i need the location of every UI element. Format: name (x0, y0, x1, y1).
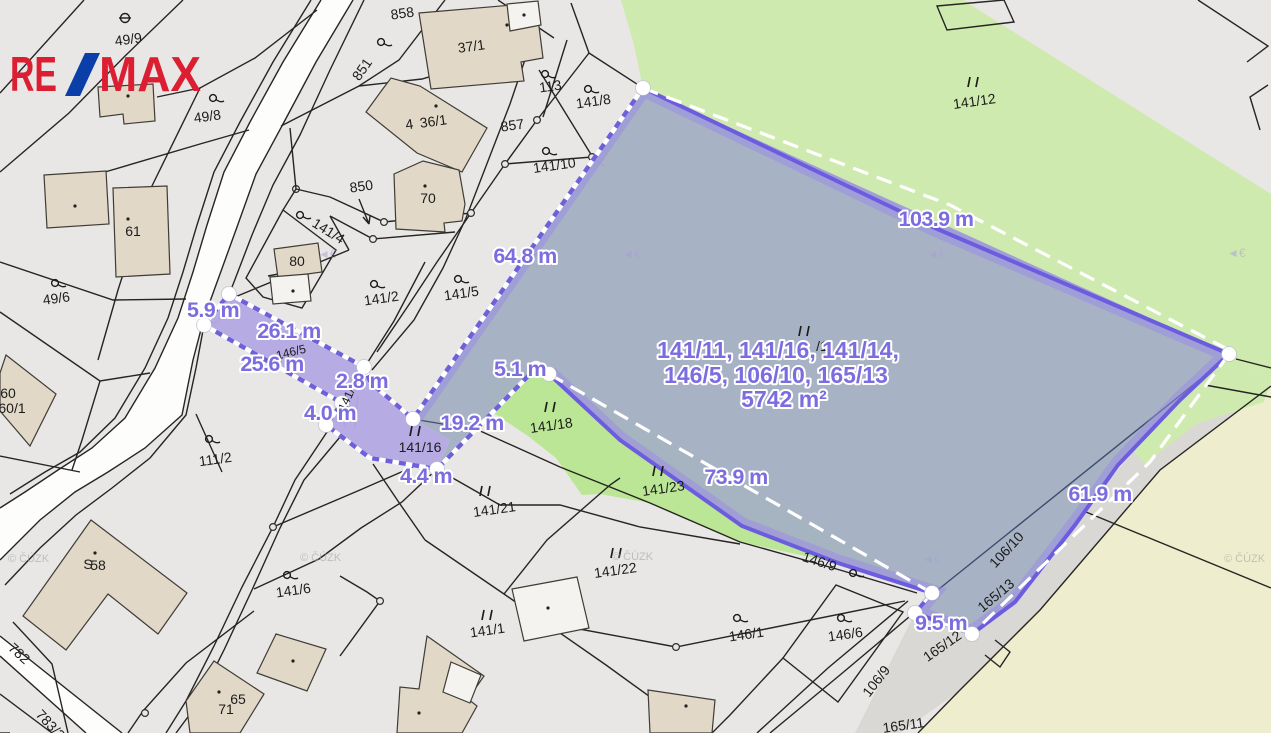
svg-text:113: 113 (538, 77, 563, 96)
svg-text:61: 61 (125, 223, 141, 239)
svg-text:141/16: 141/16 (399, 439, 442, 455)
svg-text:◄€: ◄€ (318, 247, 337, 261)
svg-text:© ČÚZK: © ČÚZK (8, 552, 50, 565)
svg-text:141/11, 141/16, 141/14,: 141/11, 141/16, 141/14, (657, 337, 899, 363)
svg-text:5.1 m: 5.1 m (494, 357, 546, 381)
svg-text:19.2 m: 19.2 m (440, 411, 503, 435)
svg-text:73.9 m: 73.9 m (704, 465, 767, 489)
svg-text:9.5 m: 9.5 m (915, 611, 967, 635)
svg-text:26.1 m: 26.1 m (257, 319, 320, 343)
svg-text:858: 858 (390, 3, 416, 22)
svg-text:© ČÚZK: © ČÚZK (300, 551, 342, 564)
svg-text:© ČÚZK: © ČÚZK (612, 550, 654, 563)
svg-text:60: 60 (0, 385, 16, 401)
svg-text:61.9 m: 61.9 m (1068, 482, 1131, 506)
svg-text:◄€: ◄€ (922, 552, 941, 566)
svg-text:5742 m²: 5742 m² (741, 386, 827, 412)
svg-text:© ČÚZK: © ČÚZK (1224, 552, 1266, 565)
svg-text:850: 850 (349, 176, 375, 195)
svg-text:4.4 m: 4.4 m (400, 464, 452, 488)
svg-text:65: 65 (230, 691, 246, 707)
svg-text:60/1: 60/1 (0, 400, 26, 416)
svg-text:S: S (83, 556, 92, 572)
svg-text:64.8 m: 64.8 m (493, 244, 556, 268)
svg-text:◄€: ◄€ (1227, 246, 1246, 260)
svg-text:2.8 m: 2.8 m (336, 369, 388, 393)
svg-text:857: 857 (500, 115, 526, 134)
svg-text:RE: RE (10, 48, 57, 102)
svg-text:◄€: ◄€ (927, 247, 946, 261)
svg-text:◄€: ◄€ (622, 247, 641, 261)
svg-text:103.9 m: 103.9 m (899, 207, 974, 231)
svg-text:4.0 m: 4.0 m (304, 401, 356, 425)
svg-text:25.6 m: 25.6 m (240, 352, 303, 376)
svg-text:MAX: MAX (99, 48, 201, 102)
svg-text:146/5, 106/10, 165/13: 146/5, 106/10, 165/13 (664, 362, 888, 388)
svg-text:5.9 m: 5.9 m (187, 298, 239, 322)
svg-text:70: 70 (420, 190, 436, 206)
svg-text:80: 80 (289, 253, 305, 269)
